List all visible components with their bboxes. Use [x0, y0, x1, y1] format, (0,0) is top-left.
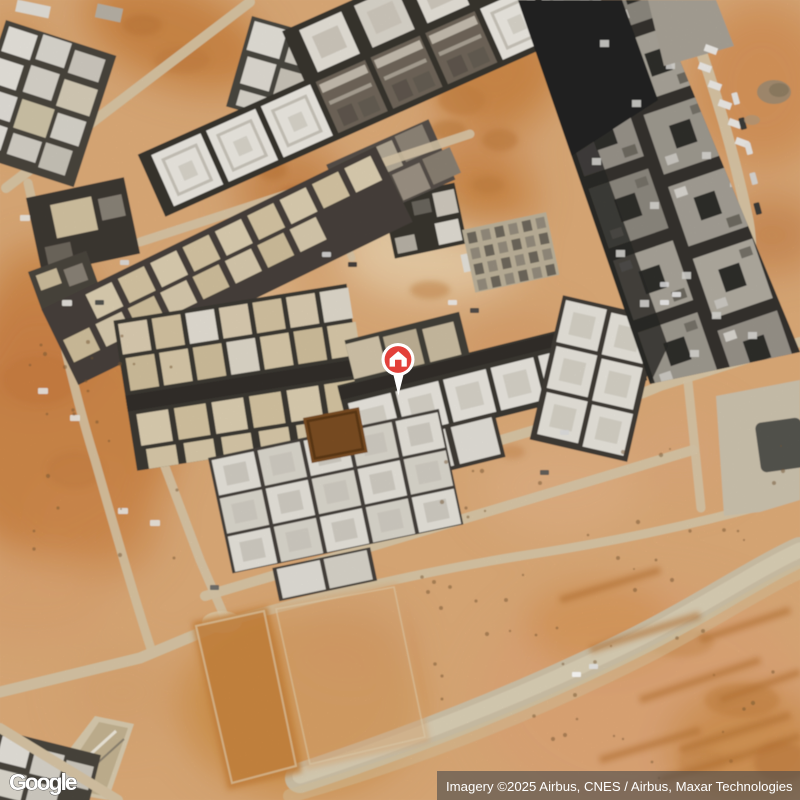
svg-text:Google: Google [9, 769, 78, 795]
svg-text:Imagery ©2025 Airbus, CNES / A: Imagery ©2025 Airbus, CNES / Airbus, Max… [446, 779, 793, 794]
